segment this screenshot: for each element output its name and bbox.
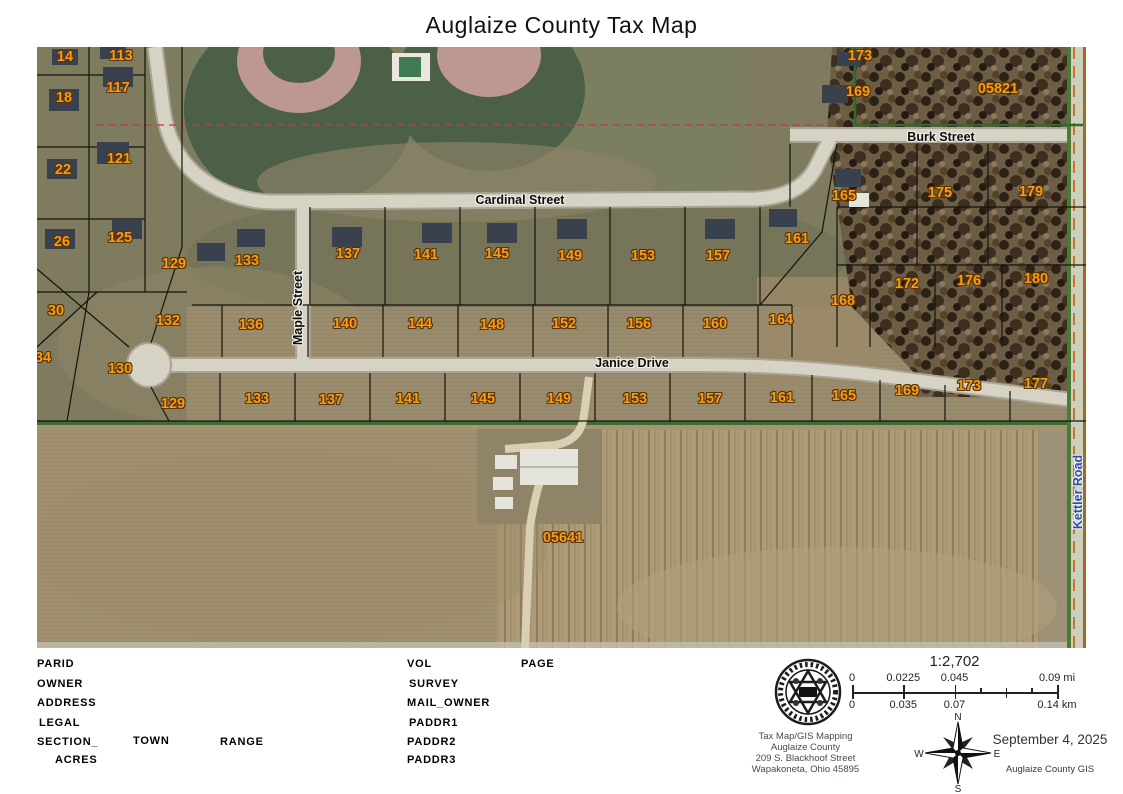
scale-tick	[1006, 694, 1008, 698]
parcel-label-153: 153	[631, 248, 655, 264]
tax-map-page: Auglaize County Tax Map	[0, 0, 1123, 794]
parcel-label-137: 137	[319, 392, 343, 408]
parcel-label-168: 168	[831, 293, 855, 309]
parcel-label-165: 165	[832, 188, 856, 204]
compass-rose: N E S W	[913, 712, 1003, 792]
parcel-label-173: 173	[848, 48, 872, 64]
parcel-label-177: 177	[1024, 376, 1048, 392]
scale-tick	[955, 694, 957, 699]
field-label-vol: VOL	[407, 658, 432, 670]
field-label-range: RANGE	[220, 736, 264, 748]
parcel-label-140: 140	[333, 316, 357, 332]
field-label-legal: LEGAL	[39, 717, 80, 729]
parcel-label-161: 161	[770, 390, 794, 406]
parcel-label-117: 117	[106, 80, 129, 96]
scale-km-label: 0	[849, 699, 855, 711]
parcel-label-169: 169	[846, 84, 870, 100]
scale-tick	[903, 685, 905, 692]
field-label-mail-owner: MAIL_OWNER	[407, 697, 490, 709]
parcel-label-144: 144	[408, 316, 432, 332]
org-line: Auglaize County	[743, 742, 868, 753]
parcel-label-34: 34	[37, 350, 51, 366]
parcel-label-132: 132	[156, 313, 180, 329]
street-label-burk-street: Burk Street	[907, 130, 974, 144]
parcel-label-164: 164	[769, 312, 793, 328]
gis-credit: Auglaize County GIS	[985, 764, 1115, 775]
scale-km-label: 0.14 km	[1037, 699, 1076, 711]
parcel-label-129: 129	[161, 396, 185, 412]
field-label-paddr1: PADDR1	[409, 717, 458, 729]
parcel-label-152: 152	[552, 316, 576, 332]
parcel-label-30: 30	[48, 303, 64, 319]
scale-mi-label: 0.09 mi	[1039, 672, 1075, 684]
scale-tick	[1031, 688, 1033, 692]
parcel-label-172: 172	[895, 276, 919, 292]
org-address-block: Tax Map/GIS Mapping Auglaize County 209 …	[743, 731, 868, 775]
org-line: Tax Map/GIS Mapping	[743, 731, 868, 742]
parcel-label-153: 153	[623, 391, 647, 407]
street-label-kettler-road: Kettler Road	[1071, 455, 1085, 529]
compass-s: S	[955, 784, 962, 792]
parcel-label-130: 130	[108, 361, 132, 377]
scale-tick	[903, 694, 905, 699]
street-label-maple-street: Maple Street	[291, 271, 305, 345]
scale-mi-label: 0.045	[941, 672, 969, 684]
org-line: Wapakoneta, Ohio 45895	[743, 764, 868, 775]
scale-mi-label: 0	[849, 672, 855, 684]
field-label-paddr3: PADDR3	[407, 754, 456, 766]
field-label-section: SECTION_	[37, 736, 98, 748]
parcel-label-14: 14	[57, 49, 73, 65]
parcel-label-157: 157	[698, 391, 722, 407]
parcel-label-145: 145	[485, 246, 509, 262]
field-label-address: ADDRESS	[37, 697, 96, 709]
parcel-label-129: 129	[162, 256, 186, 272]
compass-n: N	[954, 712, 961, 723]
parcel-label-05641: 05641	[543, 530, 583, 546]
field-label-owner: OWNER	[37, 678, 83, 690]
parcel-label-137: 137	[336, 246, 360, 262]
scale-tick	[980, 688, 982, 692]
page-title: Auglaize County Tax Map	[0, 12, 1123, 39]
parcel-label-157: 157	[706, 248, 730, 264]
parcel-label-179: 179	[1019, 184, 1043, 200]
parcel-label-22: 22	[55, 162, 71, 178]
map-date: September 4, 2025	[985, 732, 1115, 747]
parcel-label-141: 141	[414, 247, 438, 263]
parcel-label-05821: 05821	[978, 81, 1018, 97]
parcel-label-125: 125	[108, 230, 132, 246]
parcel-label-26: 26	[54, 234, 70, 250]
parcel-label-141: 141	[396, 391, 420, 407]
county-seal	[768, 656, 848, 728]
parcel-label-149: 149	[558, 248, 582, 264]
parcel-label-136: 136	[239, 317, 263, 333]
parcel-label-175: 175	[928, 185, 952, 201]
parcel-label-149: 149	[547, 391, 571, 407]
parcel-label-133: 133	[245, 391, 269, 407]
org-line: 209 S. Blackhoof Street	[743, 753, 868, 764]
aerial-map-viewport[interactable]: 1411318117221212612512913330341321301371…	[37, 47, 1086, 648]
parcel-label-121: 121	[107, 151, 131, 167]
parcel-label-161: 161	[785, 231, 809, 247]
parcel-label-160: 160	[703, 316, 727, 332]
scale-mi-label: 0.0225	[886, 672, 920, 684]
parcel-label-145: 145	[471, 391, 495, 407]
parcel-label-176: 176	[957, 273, 981, 289]
field-label-survey: SURVEY	[409, 678, 459, 690]
field-label-acres: ACRES	[55, 754, 98, 766]
parcel-label-148: 148	[480, 317, 504, 333]
field-label-page: PAGE	[521, 658, 555, 670]
field-label-town: TOWN	[133, 735, 170, 747]
parcel-label-165: 165	[832, 388, 856, 404]
scale-tick	[1057, 685, 1059, 699]
parcel-label-133: 133	[235, 253, 259, 269]
street-label-cardinal-street: Cardinal Street	[476, 193, 565, 207]
parcel-label-18: 18	[56, 90, 72, 106]
parcel-label-180: 180	[1024, 271, 1048, 287]
scale-km-label: 0.07	[944, 699, 965, 711]
parcel-label-173: 173	[957, 378, 981, 394]
parcel-label-113: 113	[109, 48, 132, 64]
compass-e: E	[994, 749, 1001, 760]
scale-tick	[852, 685, 854, 699]
parcel-label-169: 169	[895, 383, 919, 399]
scale-bar: 1:2,702 00.02250.0450.09 mi00.0350.070.1…	[852, 653, 1057, 715]
compass-w: W	[914, 749, 924, 760]
scale-tick	[955, 685, 957, 692]
scale-km-label: 0.035	[889, 699, 917, 711]
scale-tick	[1006, 688, 1008, 692]
street-label-janice-drive: Janice Drive	[595, 356, 669, 370]
scale-ratio: 1:2,702	[852, 653, 1057, 670]
parcel-label-156: 156	[627, 316, 651, 332]
field-label-parid: PARID	[37, 658, 74, 670]
field-label-paddr2: PADDR2	[407, 736, 456, 748]
